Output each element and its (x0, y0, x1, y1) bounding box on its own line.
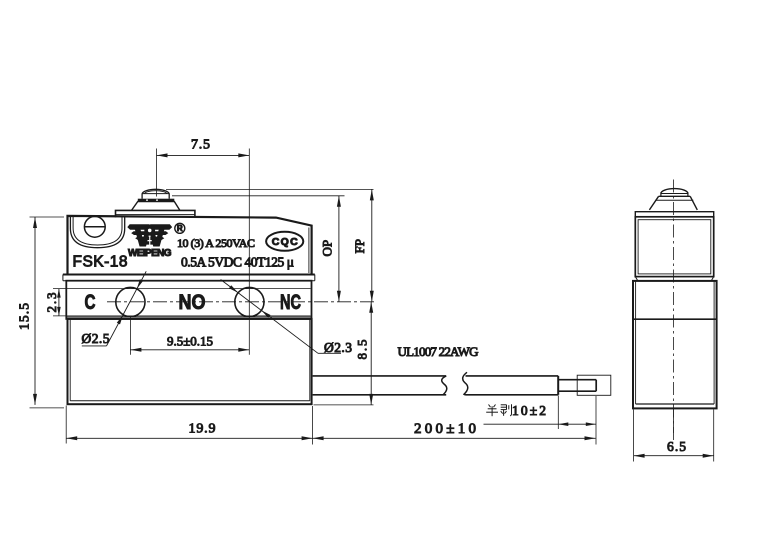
svg-text:Ø2.3: Ø2.3 (324, 340, 352, 355)
svg-text:FSK-18: FSK-18 (73, 254, 128, 271)
svg-text:NC: NC (280, 290, 301, 314)
svg-text:15.5: 15.5 (17, 303, 32, 330)
svg-text:NO: NO (179, 290, 206, 314)
svg-text:200±10: 200±10 (414, 421, 476, 437)
svg-text:8.5: 8.5 (355, 340, 370, 360)
svg-text:FP: FP (352, 239, 367, 253)
svg-text:Ø2.5: Ø2.5 (82, 331, 110, 346)
svg-text:WEIPENG: WEIPENG (128, 248, 172, 259)
svg-text:C: C (85, 290, 96, 314)
svg-text:7.5: 7.5 (191, 137, 210, 152)
svg-text:10 (3) A 250VAC: 10 (3) A 250VAC (177, 236, 255, 250)
svg-text:19.9: 19.9 (189, 421, 216, 436)
svg-text:UL1007 22AWG: UL1007 22AWG (398, 344, 479, 359)
svg-text:9.5±0.15: 9.5±0.15 (167, 334, 213, 349)
svg-text:6.5: 6.5 (667, 439, 686, 454)
svg-text:CQC: CQC (272, 236, 298, 248)
svg-text:OP: OP (320, 240, 335, 257)
svg-text:2.3: 2.3 (44, 293, 59, 313)
svg-text:R: R (177, 224, 183, 233)
svg-text:10±2: 10±2 (512, 403, 546, 418)
svg-text:0.5A 5VDC 40T125 μ: 0.5A 5VDC 40T125 μ (181, 254, 294, 269)
